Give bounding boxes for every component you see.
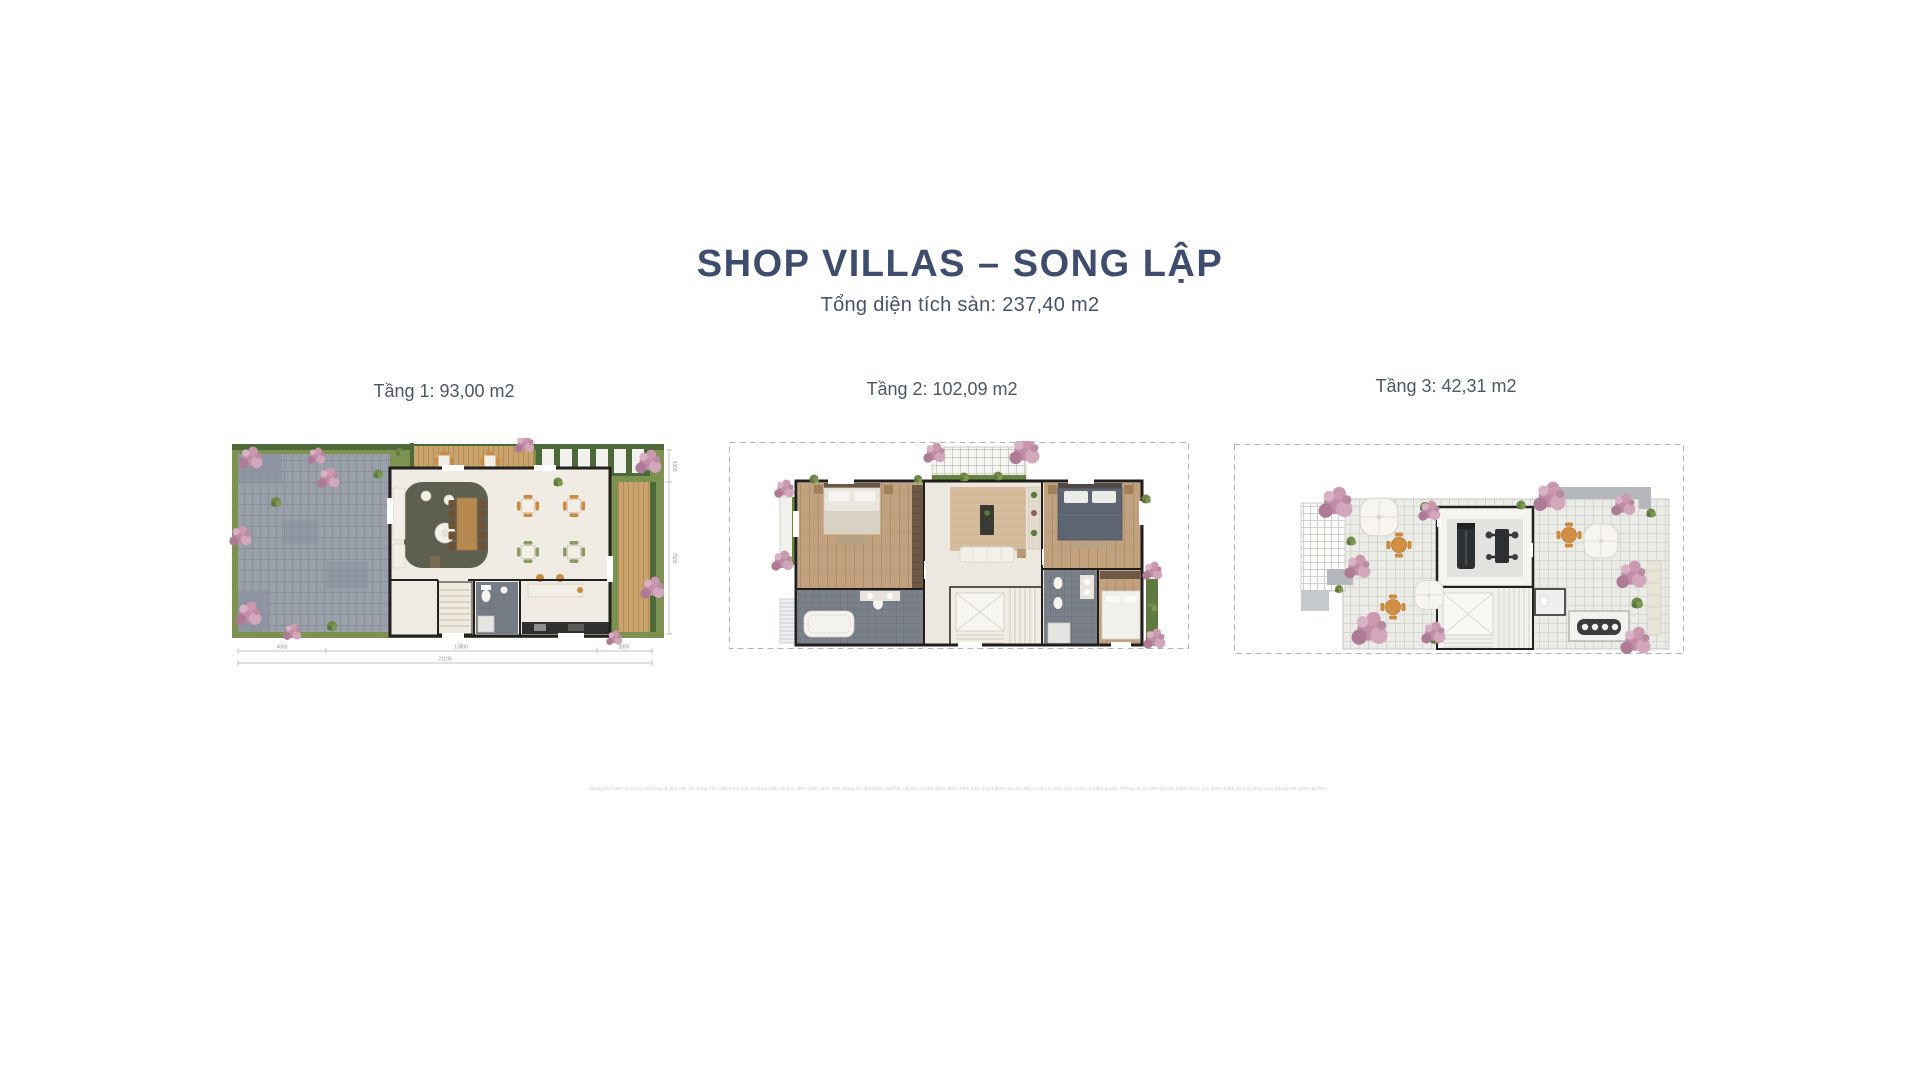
floor-3-label: Tầng 3: 42,31 m2 [1375, 376, 1516, 397]
svg-text:4500: 4500 [276, 645, 287, 651]
total-area-subtitle: Tổng diện tích sàn: 237,40 m2 [821, 294, 1100, 317]
floor-2-plan-image [728, 441, 1190, 651]
floor-1-label: Tầng 1: 93,00 m2 [373, 381, 514, 402]
floor3-stairs [1437, 587, 1533, 649]
svg-text:7500: 7500 [671, 552, 677, 563]
svg-text:2800: 2800 [618, 645, 629, 651]
disclaimer-text: Những hình ảnh và thông tin trong tài li… [588, 786, 1327, 791]
svg-text:13800: 13800 [454, 645, 468, 651]
page-title: SHOP VILLAS – SONG LẬP [697, 243, 1223, 286]
svg-text:21100: 21100 [438, 657, 452, 663]
svg-text:3300: 3300 [671, 460, 677, 471]
floor1-interior [390, 468, 610, 636]
floor-1-plan-image: 4500 13800 2800 21100 3300 7500 [228, 438, 688, 670]
page: SHOP VILLAS – SONG LẬP Tổng diện tích sà… [0, 0, 1920, 1080]
floor2-interior [796, 481, 1142, 645]
floor3-gym [1437, 507, 1533, 587]
floor-3-plan-image [1233, 443, 1685, 655]
floor-2-label: Tầng 2: 102,09 m2 [866, 379, 1017, 400]
